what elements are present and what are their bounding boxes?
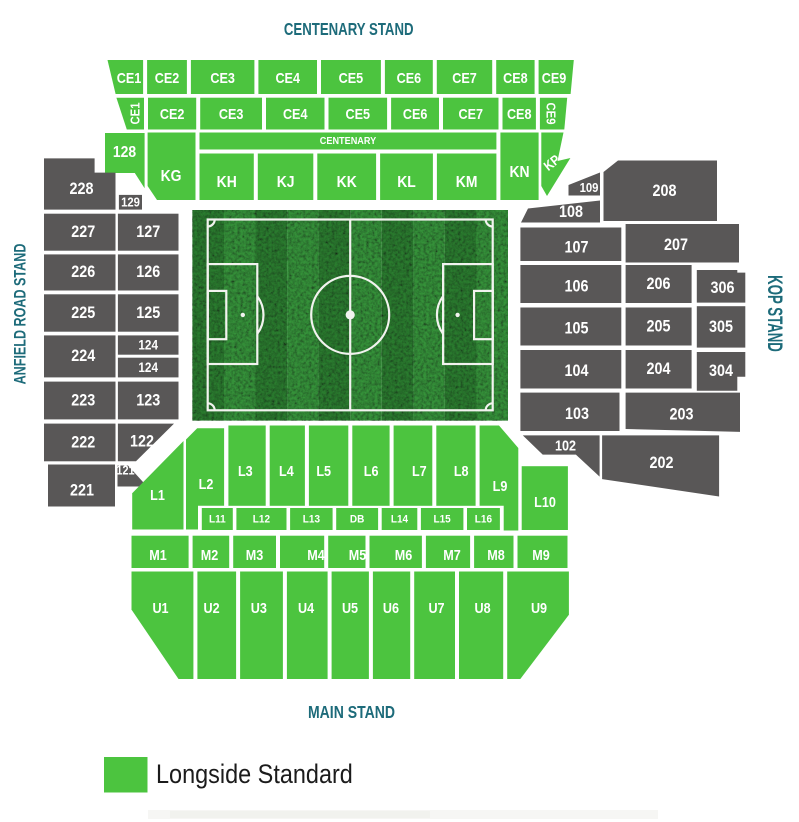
svg-text:CE2: CE2 xyxy=(155,70,180,86)
svg-text:L5: L5 xyxy=(316,463,331,479)
svg-text:M8: M8 xyxy=(487,547,505,563)
svg-text:L7: L7 xyxy=(412,463,427,479)
svg-text:L1: L1 xyxy=(150,487,165,503)
svg-text:102: 102 xyxy=(555,437,576,453)
svg-text:125: 125 xyxy=(136,304,160,322)
svg-text:225: 225 xyxy=(71,304,95,322)
svg-text:124: 124 xyxy=(138,338,158,353)
svg-text:L3: L3 xyxy=(238,463,253,479)
svg-text:CE5: CE5 xyxy=(346,106,371,122)
svg-text:222: 222 xyxy=(71,433,95,451)
svg-text:305: 305 xyxy=(709,318,733,336)
svg-text:KM: KM xyxy=(456,173,478,191)
svg-text:KJ: KJ xyxy=(277,173,295,191)
svg-text:226: 226 xyxy=(71,263,95,281)
svg-text:M3: M3 xyxy=(246,547,264,563)
svg-text:128: 128 xyxy=(113,143,136,161)
svg-text:105: 105 xyxy=(565,319,589,337)
svg-text:M7: M7 xyxy=(443,547,461,563)
svg-text:KG: KG xyxy=(161,167,182,185)
svg-text:106: 106 xyxy=(565,277,589,295)
svg-text:U6: U6 xyxy=(383,600,400,616)
svg-text:L15: L15 xyxy=(433,513,450,526)
svg-text:CE6: CE6 xyxy=(403,106,428,122)
svg-text:Longside Standard: Longside Standard xyxy=(156,760,353,790)
svg-text:L16: L16 xyxy=(475,513,492,526)
svg-text:CE1: CE1 xyxy=(128,102,143,124)
svg-text:M6: M6 xyxy=(395,547,413,563)
svg-text:CE6: CE6 xyxy=(397,70,422,86)
svg-text:KN: KN xyxy=(509,163,529,181)
svg-text:127: 127 xyxy=(136,223,160,241)
svg-text:M9: M9 xyxy=(532,547,550,563)
svg-text:108: 108 xyxy=(559,203,583,221)
svg-text:U5: U5 xyxy=(342,600,359,616)
svg-text:223: 223 xyxy=(71,391,95,409)
svg-text:CE5: CE5 xyxy=(339,70,364,86)
svg-text:104: 104 xyxy=(565,362,589,380)
svg-text:L2: L2 xyxy=(199,476,214,492)
svg-text:U4: U4 xyxy=(298,600,315,616)
svg-text:CE8: CE8 xyxy=(507,106,532,122)
svg-text:L9: L9 xyxy=(493,478,508,494)
svg-text:123: 123 xyxy=(136,391,160,409)
svg-text:L14: L14 xyxy=(391,513,408,526)
svg-text:109: 109 xyxy=(580,180,599,195)
svg-text:U9: U9 xyxy=(531,600,548,616)
svg-text:CE1: CE1 xyxy=(117,70,142,86)
svg-text:M4: M4 xyxy=(307,547,325,563)
svg-text:306: 306 xyxy=(711,279,735,297)
svg-text:CE3: CE3 xyxy=(210,70,235,86)
svg-text:221: 221 xyxy=(70,481,94,499)
svg-text:103: 103 xyxy=(565,405,589,423)
svg-text:U7: U7 xyxy=(428,600,444,616)
svg-text:202: 202 xyxy=(650,454,674,472)
svg-text:U3: U3 xyxy=(251,600,268,616)
svg-text:121: 121 xyxy=(116,464,135,478)
svg-text:DB: DB xyxy=(350,513,365,526)
svg-text:208: 208 xyxy=(653,182,677,200)
svg-text:207: 207 xyxy=(664,236,688,254)
svg-text:224: 224 xyxy=(71,347,95,365)
svg-text:M1: M1 xyxy=(149,547,167,563)
svg-text:206: 206 xyxy=(647,275,671,293)
svg-text:CE9: CE9 xyxy=(542,70,567,86)
svg-text:228: 228 xyxy=(70,180,94,198)
svg-text:MAIN STAND: MAIN STAND xyxy=(308,702,395,722)
svg-text:CE7: CE7 xyxy=(459,106,484,122)
svg-text:CE9: CE9 xyxy=(544,103,559,125)
svg-text:L6: L6 xyxy=(364,463,379,479)
svg-text:124: 124 xyxy=(138,360,158,375)
svg-text:CE8: CE8 xyxy=(503,70,528,86)
svg-text:ANFIELD ROAD STAND: ANFIELD ROAD STAND xyxy=(11,243,30,384)
svg-text:L12: L12 xyxy=(253,513,270,526)
svg-text:CE3: CE3 xyxy=(219,106,244,122)
svg-text:U8: U8 xyxy=(475,600,492,616)
svg-text:L4: L4 xyxy=(279,463,294,479)
svg-text:205: 205 xyxy=(647,317,671,335)
svg-text:M2: M2 xyxy=(201,547,219,563)
svg-text:L13: L13 xyxy=(303,513,320,526)
svg-text:CE7: CE7 xyxy=(452,70,477,86)
svg-text:L10: L10 xyxy=(534,494,556,510)
svg-text:U1: U1 xyxy=(152,600,169,616)
svg-text:CE4: CE4 xyxy=(283,106,308,122)
svg-text:L11: L11 xyxy=(209,513,226,526)
svg-text:107: 107 xyxy=(565,238,589,256)
svg-text:129: 129 xyxy=(121,195,140,210)
svg-text:KOP STAND: KOP STAND xyxy=(763,275,787,352)
svg-text:M5: M5 xyxy=(349,547,367,563)
svg-text:KL: KL xyxy=(397,173,416,191)
svg-text:122: 122 xyxy=(130,432,154,450)
svg-text:203: 203 xyxy=(670,405,694,423)
svg-text:CE4: CE4 xyxy=(275,70,300,86)
svg-text:CE2: CE2 xyxy=(160,106,185,122)
svg-text:227: 227 xyxy=(71,223,95,241)
svg-text:KH: KH xyxy=(217,173,237,191)
svg-text:CENTENARY STAND: CENTENARY STAND xyxy=(284,20,414,39)
svg-text:304: 304 xyxy=(709,362,733,380)
svg-text:126: 126 xyxy=(136,263,160,281)
svg-text:L8: L8 xyxy=(454,463,469,479)
svg-text:204: 204 xyxy=(647,360,671,378)
svg-text:CENTENARY: CENTENARY xyxy=(320,136,377,148)
svg-text:KK: KK xyxy=(337,173,357,191)
svg-text:U2: U2 xyxy=(204,600,221,616)
